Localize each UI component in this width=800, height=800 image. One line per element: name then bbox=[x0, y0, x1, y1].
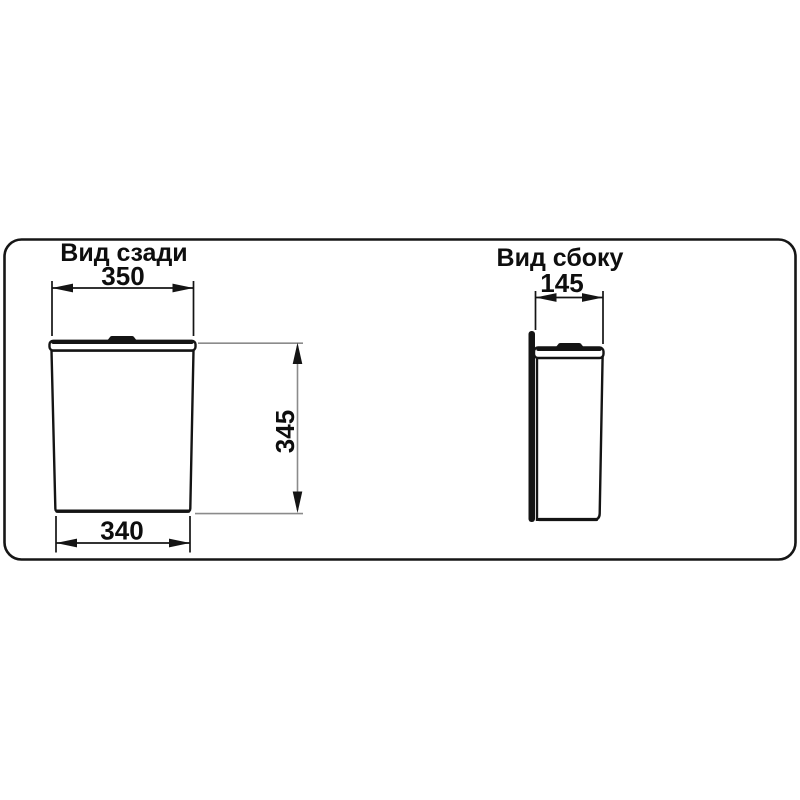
tank-side-outline bbox=[529, 331, 604, 522]
cistern-dimension-drawing: Вид сзади 350 345 bbox=[0, 0, 800, 800]
rear-top-width-label: 350 bbox=[101, 261, 144, 291]
side-back-panel bbox=[529, 331, 536, 522]
tank-rear-outline bbox=[50, 336, 196, 512]
tank-side-body bbox=[537, 357, 603, 520]
rear-height-label: 345 bbox=[270, 410, 300, 453]
rear-bottom-width-label: 340 bbox=[100, 516, 143, 546]
tank-rear-body bbox=[52, 351, 194, 512]
side-depth-label: 145 bbox=[540, 268, 583, 298]
